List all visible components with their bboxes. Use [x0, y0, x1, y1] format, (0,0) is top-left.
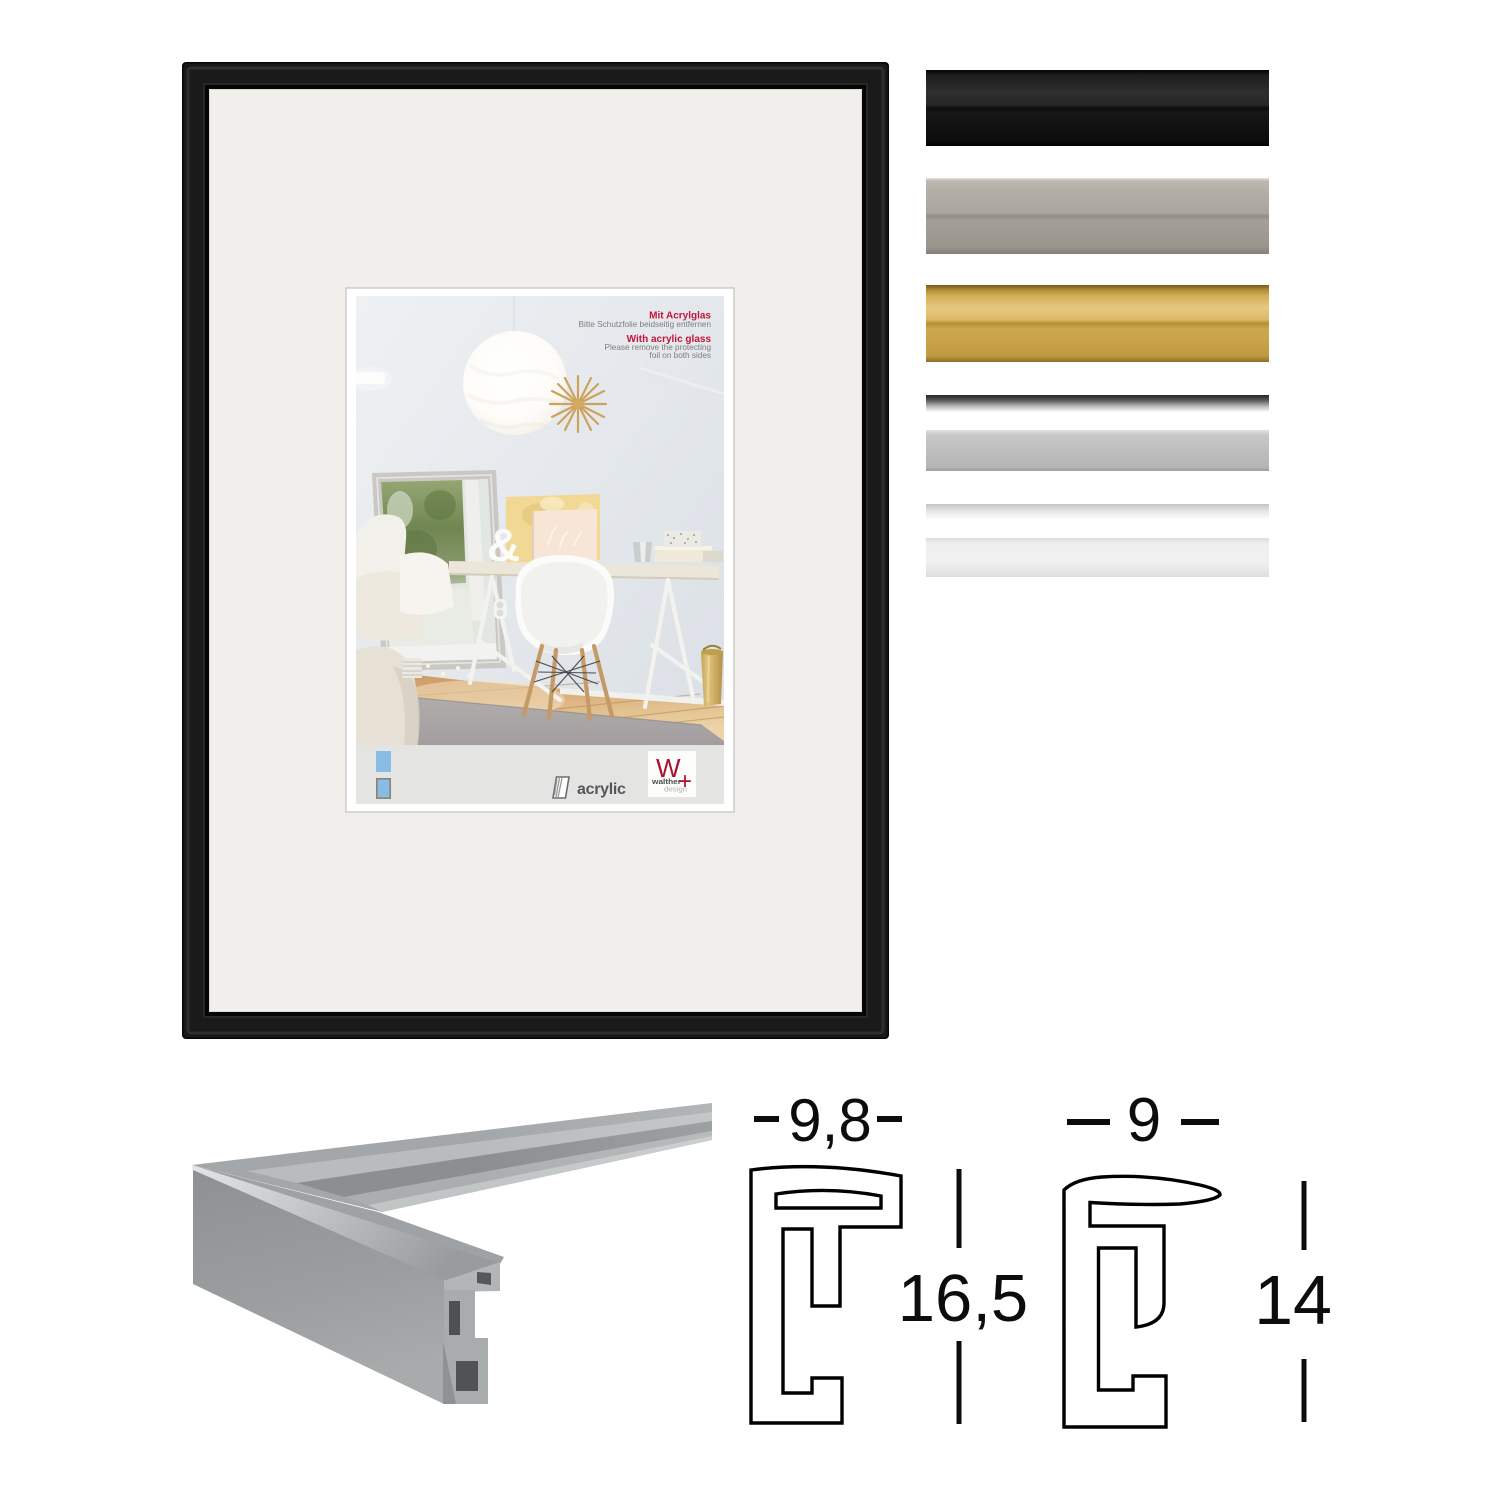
- svg-text:foil on both sides: foil on both sides: [650, 351, 711, 360]
- svg-text:design: design: [664, 785, 687, 794]
- svg-text:acrylic: acrylic: [577, 781, 626, 798]
- svg-text:9,8: 9,8: [788, 1087, 871, 1154]
- svg-text:9: 9: [1127, 1086, 1161, 1155]
- svg-text:Bitte Schutzfolie beidseitig e: Bitte Schutzfolie beidseitig entfernen: [579, 320, 712, 329]
- svg-text:16,5: 16,5: [898, 1261, 1028, 1336]
- svg-text:14: 14: [1254, 1261, 1332, 1339]
